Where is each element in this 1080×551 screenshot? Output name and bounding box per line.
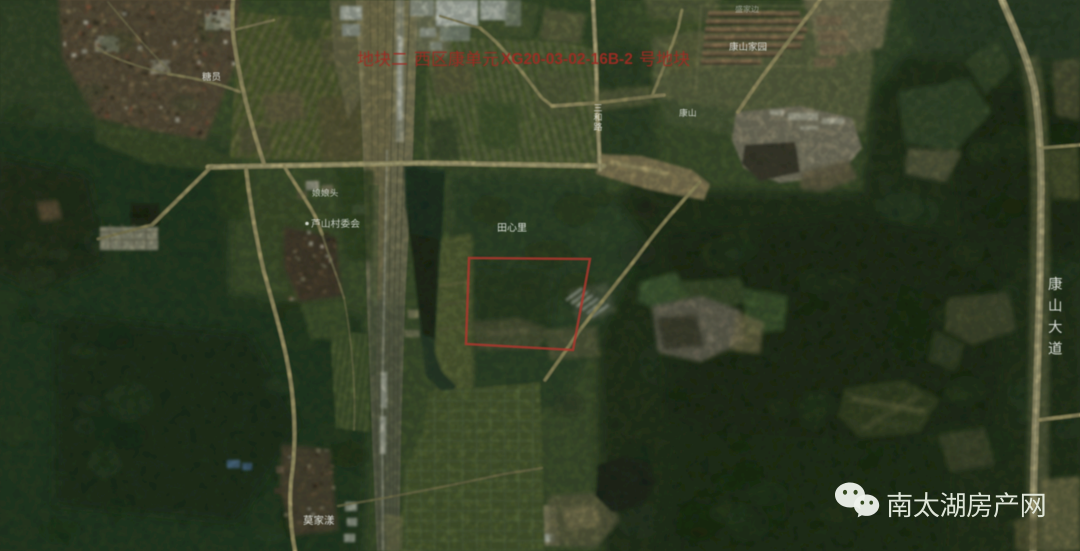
svg-text:XG20-03-02-16B-2: XG20-03-02-16B-2: [501, 51, 633, 68]
